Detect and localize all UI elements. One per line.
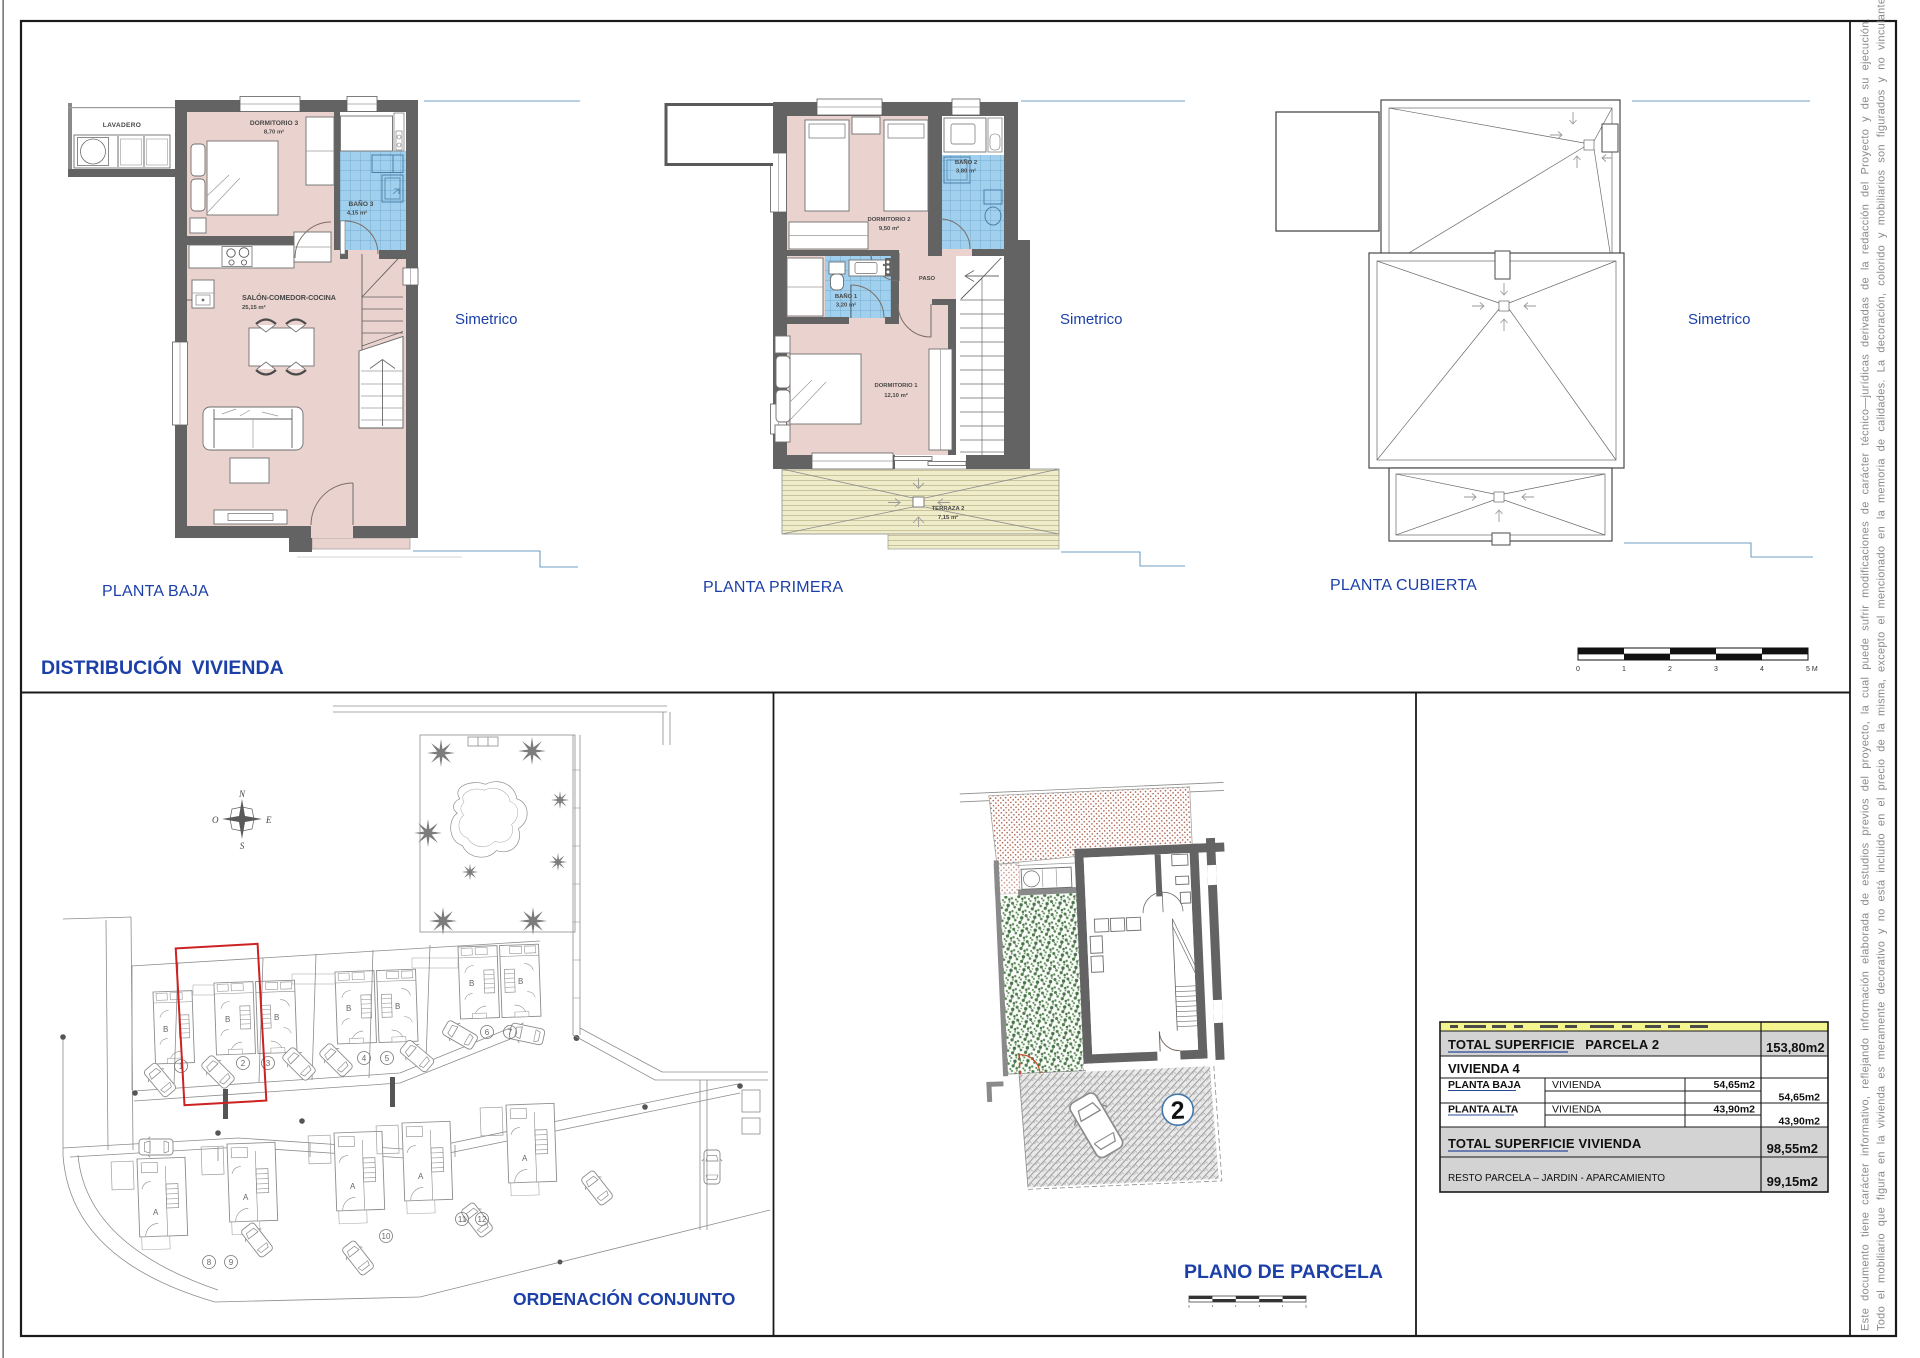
svg-text:SALÓN-COMEDOR-COCINA: SALÓN-COMEDOR-COCINA <box>242 293 336 302</box>
svg-text:Simetrico: Simetrico <box>1060 311 1123 328</box>
svg-text:BAÑO 3: BAÑO 3 <box>349 199 374 208</box>
svg-text:8: 8 <box>207 1258 212 1267</box>
svg-text:6: 6 <box>485 1028 490 1037</box>
svg-text:DORMITORIO 3: DORMITORIO 3 <box>250 120 299 127</box>
svg-text:2: 2 <box>1170 1096 1185 1125</box>
svg-text:VIVIENDA: VIVIENDA <box>1552 1104 1601 1116</box>
svg-text:TOTAL SUPERFICIE VIVIENDA: TOTAL SUPERFICIE VIVIENDA <box>1448 1136 1642 1151</box>
svg-text:Simetrico: Simetrico <box>1688 311 1751 328</box>
svg-text:3,20 m²: 3,20 m² <box>836 302 856 309</box>
svg-text:B: B <box>469 979 474 988</box>
svg-text:PLANTA BAJA: PLANTA BAJA <box>102 583 209 600</box>
svg-text:PLANTA CUBIERTA: PLANTA CUBIERTA <box>1330 577 1477 594</box>
svg-text:3,80 m²: 3,80 m² <box>956 168 976 175</box>
svg-text:DORMITORIO 1: DORMITORIO 1 <box>874 383 918 389</box>
svg-text:PLANO DE PARCELA: PLANO DE PARCELA <box>1184 1261 1383 1283</box>
svg-text:7,15 m²: 7,15 m² <box>938 514 958 521</box>
svg-text:2: 2 <box>1668 666 1672 673</box>
svg-text:DORMITORIO 2: DORMITORIO 2 <box>867 217 911 223</box>
svg-text:12,10 m²: 12,10 m² <box>884 392 908 399</box>
svg-text:7: 7 <box>508 1028 513 1037</box>
svg-text:PLANTA BAJA: PLANTA BAJA <box>1448 1079 1521 1091</box>
svg-text:12: 12 <box>478 1215 487 1224</box>
svg-text:98,55m2: 98,55m2 <box>1767 1141 1818 1156</box>
svg-text:A: A <box>418 1172 424 1181</box>
svg-text:25,15 m²: 25,15 m² <box>242 304 266 311</box>
svg-text:3: 3 <box>1714 666 1718 673</box>
svg-text:ORDENACIÓN CONJUNTO: ORDENACIÓN CONJUNTO <box>513 1288 735 1309</box>
svg-text:1: 1 <box>1622 666 1626 673</box>
svg-text:DISTRIBUCIÓN VIVIENDA: DISTRIBUCIÓN VIVIENDA <box>41 655 284 679</box>
svg-text:99,15m2: 99,15m2 <box>1767 1174 1818 1189</box>
svg-text:PLANTA ALTA: PLANTA ALTA <box>1448 1104 1519 1116</box>
svg-text:5: 5 <box>385 1054 390 1063</box>
svg-text:A: A <box>153 1208 159 1217</box>
svg-text:BAÑO 1: BAÑO 1 <box>835 293 858 300</box>
svg-text:8,70 m²: 8,70 m² <box>264 129 284 136</box>
svg-text:54,65m2: 54,65m2 <box>1714 1079 1756 1091</box>
svg-text:B: B <box>518 977 523 986</box>
svg-text:B: B <box>346 1004 351 1013</box>
svg-text:B: B <box>225 1015 230 1024</box>
svg-text:N: N <box>238 789 246 799</box>
svg-text:B: B <box>395 1002 400 1011</box>
svg-text:VIVIENDA 4: VIVIENDA 4 <box>1448 1061 1521 1076</box>
svg-text:54,65m2: 54,65m2 <box>1779 1092 1821 1104</box>
svg-text:43,90m2: 43,90m2 <box>1714 1104 1756 1116</box>
svg-text:B: B <box>274 1013 279 1022</box>
svg-text:4: 4 <box>362 1054 367 1063</box>
svg-text:TOTAL SUPERFICIE PARCELA 2: TOTAL SUPERFICIE PARCELA 2 <box>1448 1037 1659 1052</box>
svg-text:0: 0 <box>1576 666 1580 673</box>
svg-text:3: 3 <box>266 1059 271 1068</box>
svg-text:153,80m2: 153,80m2 <box>1766 1040 1825 1055</box>
svg-text:RESTO PARCELA – JARDIN - APARC: RESTO PARCELA – JARDIN - APARCAMIENTO <box>1448 1173 1665 1184</box>
svg-text:B: B <box>163 1025 168 1034</box>
svg-text:E: E <box>265 815 272 825</box>
svg-text:4: 4 <box>1760 666 1764 673</box>
svg-text:Todo el mobiliario que figura: Todo el mobiliario que figura en la vivi… <box>1876 0 1888 1331</box>
svg-text:2: 2 <box>241 1059 246 1068</box>
svg-text:Simetrico: Simetrico <box>455 311 518 328</box>
svg-text:BAÑO 2: BAÑO 2 <box>955 159 978 166</box>
svg-text:TERRAZA 2: TERRAZA 2 <box>932 506 966 512</box>
svg-text:11: 11 <box>458 1215 467 1224</box>
svg-text:LAVADERO: LAVADERO <box>103 122 141 129</box>
svg-text:PLANTA PRIMERA: PLANTA PRIMERA <box>703 579 843 596</box>
svg-text:9: 9 <box>229 1258 234 1267</box>
svg-text:PASO: PASO <box>919 276 936 282</box>
svg-text:10: 10 <box>382 1232 391 1241</box>
svg-text:5 M: 5 M <box>1806 666 1818 673</box>
svg-text:VIVIENDA: VIVIENDA <box>1552 1079 1601 1091</box>
svg-text:A: A <box>522 1154 528 1163</box>
svg-text:9,50 m²: 9,50 m² <box>879 225 899 232</box>
svg-text:A: A <box>243 1193 249 1202</box>
svg-text:43,90m2: 43,90m2 <box>1779 1116 1821 1128</box>
svg-text:Este documento tiene carácter: Este documento tiene carácter informativ… <box>1860 18 1872 1331</box>
svg-text:A: A <box>350 1182 356 1191</box>
svg-text:O: O <box>212 815 219 825</box>
svg-text:S: S <box>240 841 245 851</box>
svg-text:4,15 m²: 4,15 m² <box>347 210 367 217</box>
